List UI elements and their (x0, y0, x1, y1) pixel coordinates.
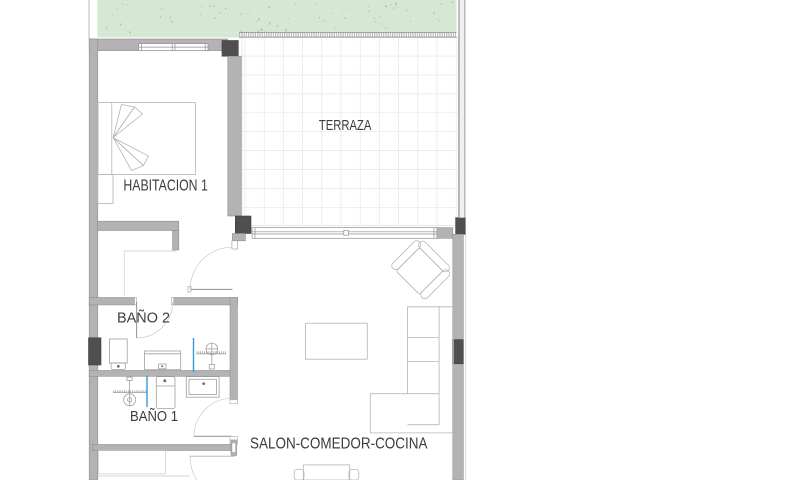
svg-text:SALON-COMEDOR-COCINA: SALON-COMEDOR-COCINA (250, 436, 428, 453)
svg-text:BAÑO 1: BAÑO 1 (130, 408, 178, 425)
svg-text:TERRAZA: TERRAZA (319, 118, 372, 134)
svg-text:BAÑO 2: BAÑO 2 (117, 310, 170, 327)
svg-text:HABITACION 1: HABITACION 1 (123, 177, 208, 194)
